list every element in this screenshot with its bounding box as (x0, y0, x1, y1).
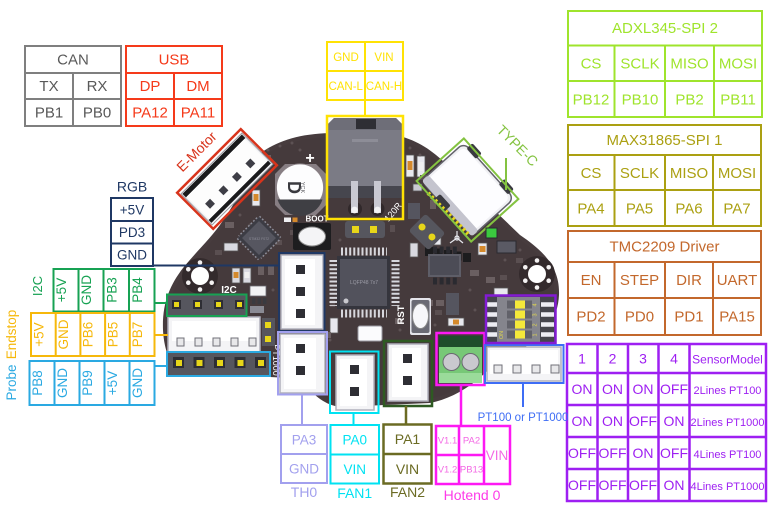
svg-text:STEP: STEP (620, 272, 659, 289)
svg-text:CS: CS (581, 56, 602, 73)
svg-text:SensorModel: SensorModel (692, 353, 763, 367)
svg-text:PA7: PA7 (723, 201, 750, 218)
svg-text:3: 3 (533, 313, 539, 316)
svg-text:PA6: PA6 (675, 201, 702, 218)
svg-text:PA1: PA1 (395, 431, 421, 447)
svg-text:YCK: YCK (299, 182, 305, 194)
svg-text:CAN-H: CAN-H (366, 81, 402, 93)
svg-text:ON: ON (602, 413, 623, 429)
svg-text:ON: ON (499, 331, 505, 339)
svg-text:GND: GND (79, 275, 94, 305)
svg-text:TMC2209 Driver: TMC2209 Driver (609, 239, 719, 256)
svg-text:OFF: OFF (599, 477, 627, 493)
svg-text:TYPE-C: TYPE-C (494, 122, 542, 170)
svg-text:+: + (305, 150, 314, 167)
svg-text:1: 1 (578, 351, 586, 367)
svg-text:OFF: OFF (660, 381, 688, 397)
svg-text:OFF: OFF (660, 445, 688, 461)
svg-text:PB3: PB3 (104, 277, 119, 303)
svg-text:PA4: PA4 (577, 201, 604, 218)
svg-text:PB0: PB0 (83, 105, 111, 122)
svg-text:CAN-L: CAN-L (328, 81, 363, 93)
svg-text:PA11: PA11 (181, 105, 215, 122)
svg-text:PD0: PD0 (625, 309, 654, 326)
svg-text:GND: GND (333, 52, 359, 64)
svg-text:PB7: PB7 (130, 322, 145, 348)
svg-text:EN: EN (581, 272, 602, 289)
svg-text:MOSI: MOSI (719, 56, 757, 73)
svg-text:PA3: PA3 (292, 433, 317, 448)
svg-text:SCLK: SCLK (620, 56, 659, 73)
svg-text:GND: GND (117, 248, 147, 263)
svg-text:RGB: RGB (117, 179, 147, 195)
svg-text:+5V: +5V (54, 278, 69, 302)
svg-text:USB: USB (159, 52, 190, 69)
svg-text:Endstop: Endstop (4, 310, 19, 360)
svg-text:I2C: I2C (30, 276, 45, 296)
svg-text:VIN: VIN (396, 461, 419, 477)
svg-text:PB6: PB6 (81, 322, 96, 348)
svg-text:2: 2 (533, 323, 539, 326)
svg-text:PB12: PB12 (573, 92, 610, 109)
svg-text:ON: ON (572, 381, 593, 397)
svg-text:PB2: PB2 (675, 92, 703, 109)
svg-text:2Lines PT100: 2Lines PT100 (694, 385, 762, 397)
svg-text:PB10: PB10 (622, 92, 659, 109)
svg-text:PB8: PB8 (30, 370, 45, 396)
svg-text:ADXL345-SPI 2: ADXL345-SPI 2 (612, 20, 718, 37)
svg-text:OFF: OFF (599, 445, 627, 461)
svg-text:PB5: PB5 (105, 322, 120, 348)
svg-text:2Lines PT1000: 2Lines PT1000 (691, 417, 765, 429)
svg-text:CS: CS (581, 165, 602, 182)
svg-text:OFF: OFF (629, 477, 657, 493)
svg-text:1: 1 (533, 333, 539, 336)
svg-text:MISO: MISO (670, 56, 708, 73)
svg-text:GND: GND (289, 462, 319, 477)
svg-text:FAN1: FAN1 (337, 485, 372, 501)
svg-text:PB9: PB9 (80, 370, 95, 396)
svg-text:PD1: PD1 (674, 309, 703, 326)
svg-text:PA0: PA0 (342, 433, 367, 448)
svg-text:PA12: PA12 (132, 105, 168, 122)
svg-text:MISO: MISO (670, 165, 708, 182)
svg-text:OFF: OFF (568, 445, 596, 461)
svg-text:4Lines PT100: 4Lines PT100 (694, 449, 762, 461)
svg-text:ON: ON (633, 445, 654, 461)
svg-text:ON: ON (633, 381, 654, 397)
svg-text:4: 4 (670, 351, 678, 367)
svg-text:VIN: VIN (374, 52, 393, 64)
svg-text:PA5: PA5 (626, 201, 653, 218)
svg-text:SCLK: SCLK (620, 165, 659, 182)
svg-text:BOOT: BOOT (305, 215, 328, 224)
svg-text:PA15: PA15 (719, 309, 755, 326)
svg-text:STM32 F072: STM32 F072 (249, 237, 269, 241)
svg-text:PB13: PB13 (460, 465, 483, 476)
svg-text:+5V: +5V (31, 322, 46, 346)
svg-text:4Lines PT1000: 4Lines PT1000 (691, 481, 765, 493)
svg-text:TX: TX (39, 78, 58, 95)
svg-text:+5V: +5V (105, 371, 120, 395)
svg-text:ON: ON (664, 477, 685, 493)
svg-text:TH0: TH0 (291, 484, 318, 500)
svg-text:MAX31865-SPI 1: MAX31865-SPI 1 (607, 132, 723, 149)
svg-text:GND: GND (130, 368, 145, 398)
svg-text:3: 3 (639, 351, 647, 367)
svg-text:V1.2: V1.2 (438, 465, 458, 476)
svg-text:GND: GND (55, 368, 70, 398)
svg-text:4: 4 (533, 303, 539, 306)
svg-text:DM: DM (186, 78, 209, 95)
svg-text:ON: ON (664, 413, 685, 429)
svg-text:MOSI: MOSI (718, 165, 756, 182)
svg-text:CAN: CAN (57, 52, 89, 69)
svg-text:VIN: VIN (343, 462, 366, 477)
svg-text:PB1: PB1 (35, 105, 63, 122)
svg-text:DIR: DIR (676, 272, 702, 289)
svg-text:PA2: PA2 (463, 436, 480, 447)
svg-text:PB11: PB11 (720, 92, 756, 109)
svg-text:ON: ON (572, 413, 593, 429)
svg-text:OFF: OFF (568, 477, 596, 493)
svg-text:RST: RST (396, 305, 407, 324)
svg-text:+5V: +5V (120, 203, 144, 218)
svg-text:PD2: PD2 (576, 309, 605, 326)
svg-text:OFF: OFF (629, 413, 657, 429)
svg-text:FAN2: FAN2 (390, 484, 425, 500)
svg-text:PT100 or PT1000: PT100 or PT1000 (478, 412, 569, 424)
svg-text:V1.1: V1.1 (438, 436, 458, 447)
svg-text:Probe: Probe (4, 364, 19, 400)
svg-text:UART: UART (717, 272, 758, 289)
svg-text:RX: RX (87, 78, 108, 95)
svg-text:ON: ON (602, 381, 623, 397)
svg-text:2: 2 (609, 351, 617, 367)
svg-text:DP: DP (140, 78, 161, 95)
svg-text:VIN: VIN (486, 448, 509, 463)
svg-text:GND: GND (56, 319, 71, 349)
svg-text:LQFP48 7x7: LQFP48 7x7 (350, 280, 378, 286)
svg-text:PD3: PD3 (119, 225, 145, 240)
svg-text:PB4: PB4 (130, 277, 145, 303)
svg-text:Hotend 0: Hotend 0 (444, 487, 501, 503)
